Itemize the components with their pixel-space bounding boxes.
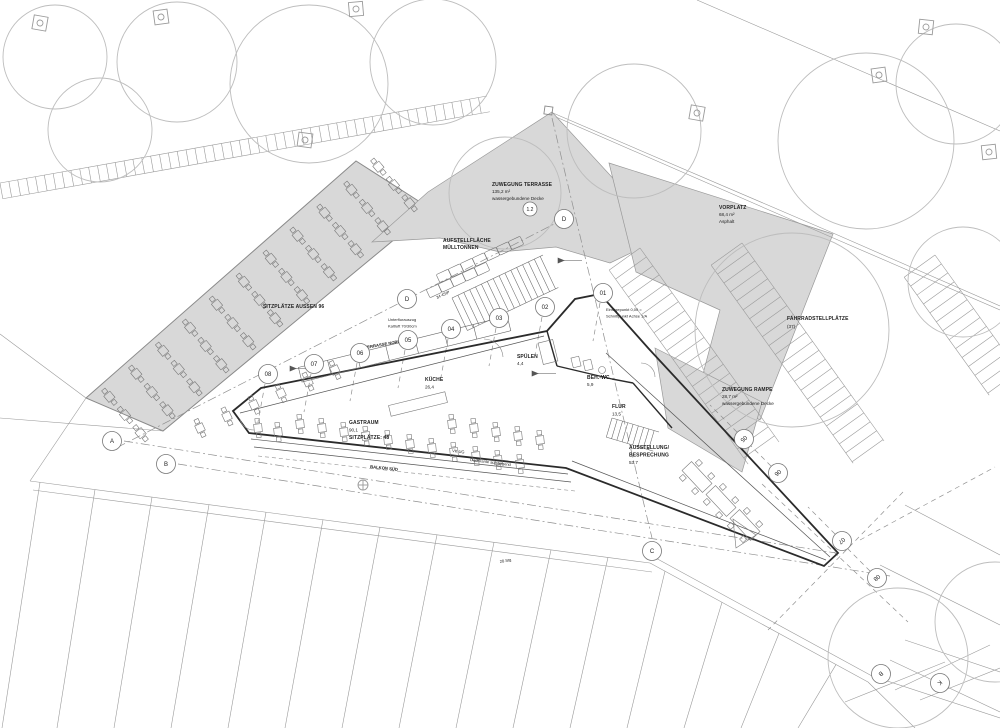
sidewalk-rung: [0, 183, 3, 199]
parking-top-edge: [652, 556, 872, 676]
label-sitzplaetze-aussen: SITZPLÄTZE AUSSEN 96: [263, 303, 324, 310]
boundary-line: [697, 0, 1000, 131]
label-flur: FLUR: [612, 404, 626, 410]
bike-parking-rung: [827, 404, 858, 426]
sidewalk-rung: [177, 151, 180, 167]
parking-stall-line: [171, 505, 209, 728]
parking-stall-line: [627, 571, 665, 728]
grid-marker: 07: [305, 355, 324, 374]
sidewalk-rung: [328, 124, 331, 140]
grid-marker-label: 04: [448, 327, 455, 333]
paved-areas-layer: [86, 112, 833, 472]
chair: [329, 360, 335, 366]
chair: [275, 422, 280, 427]
chair: [695, 459, 702, 466]
sidewalk-rung: [168, 153, 171, 169]
chair: [719, 483, 726, 490]
conference-table: [701, 481, 741, 521]
sidewalk-rung: [133, 159, 136, 175]
gastraum-table: [491, 422, 501, 442]
bike-parking-rung: [648, 302, 679, 324]
flur-stair-rail: [612, 418, 659, 432]
sidewalk-rung: [284, 132, 287, 148]
tree-canopy: [370, 0, 496, 125]
edge-parking-rung: [981, 362, 1000, 384]
boundary-line: [880, 565, 1000, 625]
marker-stub: [489, 328, 496, 366]
conference-table-top: [706, 486, 736, 517]
tree-trunk-square: [871, 67, 887, 83]
parking-stall-line: [456, 542, 494, 728]
sidewalk-rung: [416, 109, 419, 125]
label-fahrradstellplaetze-count: (37): [787, 324, 796, 329]
chair: [449, 414, 454, 419]
tree-canopy: [3, 5, 107, 109]
sidewalk-rung: [390, 113, 393, 129]
grid-marker: 06: [351, 344, 370, 363]
marker-stub: [535, 317, 542, 355]
gastraum-table-top: [514, 432, 523, 441]
sidewalk-rung: [461, 101, 464, 117]
chair: [194, 418, 200, 424]
chair: [200, 432, 206, 438]
gastraum-table-top: [296, 420, 305, 429]
survey-point-marker: [544, 106, 553, 115]
parking-stall-line: [570, 557, 608, 728]
label-zuwegung-rampe: ZUWEGUNG RAMPE: [722, 387, 773, 393]
label-kueche-size: 26,4: [425, 385, 434, 390]
label-zuwegung-terrasse: ZUWEGUNG TERRASSE: [492, 182, 553, 188]
sidewalk-rung: [266, 136, 269, 152]
plan-svg: ZUWEGUNG TERRASSE 135,2 m² wassergebunde…: [0, 0, 1000, 728]
grid-marker-label: 03: [496, 316, 503, 322]
parking-stall-line: [399, 535, 437, 728]
chair: [341, 422, 346, 427]
chair: [471, 418, 476, 423]
grid-marker-label: B: [164, 462, 168, 468]
edge-parking-rung: [968, 344, 999, 366]
label-beh-wc: BEH.-WC: [587, 375, 610, 381]
label-beh-wc-size: 5,9: [587, 382, 594, 387]
grid-marker-label: A: [110, 439, 114, 445]
tree-trunk-marker: [153, 9, 169, 25]
bike-parking-rung: [794, 359, 825, 381]
main-stair-rung: [505, 273, 520, 306]
grid-marker: 04: [442, 320, 461, 339]
grid-marker: B: [157, 455, 176, 474]
parking-stall-line: [342, 527, 380, 728]
chair: [221, 407, 227, 413]
main-stair-rung: [540, 256, 555, 289]
parking-top-edge: [33, 490, 652, 572]
edge-parking-rung: [943, 309, 974, 331]
chair: [493, 422, 498, 427]
grid-marker: D: [398, 290, 417, 309]
bike-parking-rung: [628, 275, 659, 297]
gastraum-table-top: [340, 428, 349, 437]
gastraum-table: [295, 414, 305, 434]
chair: [472, 433, 477, 438]
grid-marker: 02: [536, 298, 555, 317]
grid-marker-label: D: [405, 297, 410, 303]
chair: [320, 433, 325, 438]
chair: [473, 446, 478, 451]
sidewalk-rung: [275, 134, 278, 150]
note-unterflur-2: Kaltluft 70/30cm: [388, 324, 417, 329]
chair: [703, 498, 710, 505]
sidewalk-rung: [452, 102, 455, 118]
bike-parking-rung: [673, 337, 704, 359]
kitchen-island: [389, 392, 448, 417]
tree-canopy: [117, 2, 237, 122]
edge-parking-rung: [956, 326, 987, 348]
chair: [679, 474, 686, 481]
corner-lane-line: [868, 682, 915, 728]
tree-trunk-square: [153, 9, 169, 25]
tree-trunk-circle: [986, 149, 993, 156]
parking-stall-line: [285, 520, 323, 728]
flur-stair-rung: [633, 426, 639, 445]
flur-stair-rung: [638, 427, 644, 446]
bike-parking-rung: [801, 368, 832, 390]
sidewalk-rung: [221, 143, 224, 159]
chair: [342, 437, 347, 442]
chair: [255, 418, 260, 423]
parking-stall-line: [2, 482, 40, 728]
edge-parking-rung: [930, 291, 961, 313]
sidewalk-rung: [97, 166, 100, 182]
tree-trunk-marker: [348, 1, 363, 16]
label-balkon-sued: BALKON SÜD: [370, 464, 398, 472]
edge-parking-rung: [962, 335, 993, 357]
label-zuwegung-terrasse-surface: wassergebundene Decke: [492, 196, 544, 201]
sidewalk-rung: [399, 112, 402, 128]
gastraum-table: [317, 418, 327, 438]
main-stair-rung: [499, 276, 514, 309]
flur-stair-rung: [606, 418, 612, 437]
tree-trunk-circle: [302, 137, 309, 144]
main-stair-rung: [534, 259, 549, 292]
label-vorplatz: VORPLATZ: [719, 205, 746, 211]
chair: [297, 414, 302, 419]
sidewalk-rail: [0, 96, 487, 183]
sidewalk-rung: [124, 161, 127, 177]
label-zuwegung-rampe-size: 28,7 m²: [722, 394, 738, 399]
label-fahrradstellplaetze: FAHRRADSTELLPLÄTZE: [787, 315, 849, 322]
tree-trunk-marker: [981, 144, 996, 159]
sidewalk-rung: [213, 145, 216, 161]
sidewalk-rung: [106, 164, 109, 180]
label-kueche: KÜCHE: [425, 376, 444, 383]
sidewalk-rung: [248, 139, 251, 155]
label-ausstellung: AUSSTELLUNG/: [629, 445, 670, 451]
tree-trunk-circle: [694, 110, 701, 117]
tree-trunk-square: [981, 144, 996, 159]
site-plan-drawing: ZUWEGUNG TERRASSE 135,2 m² wassergebunde…: [0, 0, 1000, 728]
gastraum-table: [513, 426, 523, 446]
flag-head: [290, 366, 296, 371]
note-einfuegepunkt-2: Schnittpunkt Achse 1/A: [606, 314, 647, 319]
bike-parking-rung: [660, 320, 691, 342]
tree-canopy: [48, 78, 152, 182]
parking-stall-line: [228, 512, 266, 728]
grid-marker-label: 01: [600, 291, 607, 297]
sidewalk-rung: [292, 131, 295, 147]
gastraum-table-top: [254, 424, 263, 433]
main-stair-rung: [528, 262, 543, 295]
survey-flag-icon: [532, 371, 556, 376]
property-dash-line: [860, 467, 995, 540]
sidewalk-rung: [80, 169, 83, 185]
label-vorplatz-size: 68,4 m²: [719, 212, 735, 217]
main-stair-rung: [511, 270, 526, 303]
chair: [319, 418, 324, 423]
chair: [756, 521, 763, 528]
wc-fixture: [571, 356, 581, 368]
grid-marker: D: [555, 210, 574, 229]
label-gastraum-size: 90,1: [349, 428, 358, 433]
chair: [452, 457, 457, 462]
sidewalk-rung: [425, 107, 428, 123]
note-ramp-steps: 28 Stg: [499, 557, 511, 564]
sidewalk-rung: [159, 155, 162, 171]
boundary-line: [0, 334, 86, 398]
grid-marker: B: [868, 661, 895, 688]
tree-trunk-circle: [37, 20, 44, 27]
bike-parking-rung: [814, 386, 845, 408]
grid-marker: 03: [490, 309, 509, 328]
gastraum-table: [427, 438, 437, 458]
marker-stub: [808, 507, 835, 534]
sidewalk-rung: [62, 172, 65, 188]
bike-parking-rung: [667, 328, 698, 350]
label-zuwegung-rampe-surface: wassergebundene Decke: [722, 401, 774, 406]
main-stair-rung: [523, 265, 538, 298]
chair: [515, 426, 520, 431]
property-dash-line: [768, 492, 903, 630]
chair: [518, 469, 523, 474]
sidewalk-rung: [346, 121, 349, 137]
property-dash-line: [762, 484, 908, 622]
chair: [743, 507, 750, 514]
sidewalk-rung: [151, 156, 154, 172]
chair: [276, 437, 281, 442]
sidewalk-rung: [35, 177, 38, 193]
chair: [450, 429, 455, 434]
sidewalk-rail: [3, 112, 490, 199]
chair: [517, 454, 522, 459]
grid-marker-label: D: [562, 217, 567, 223]
chair: [335, 374, 341, 380]
label-spuelen: SPÜLEN: [517, 353, 538, 360]
sidewalk-rung: [443, 104, 446, 120]
terrace-table: [219, 406, 234, 427]
edge-parking-rung: [936, 300, 967, 322]
gastraum-table: [447, 414, 457, 434]
grid-marker: K: [927, 670, 954, 697]
label-flur-size: 13,5: [612, 412, 621, 417]
conference-table: [725, 505, 765, 545]
sidewalk-rung: [53, 174, 56, 190]
tree-trunk-circle: [876, 72, 883, 79]
chair: [407, 434, 412, 439]
bike-parking-rung: [654, 311, 685, 333]
chair: [538, 445, 543, 450]
stairs-layer: [452, 255, 659, 451]
tree-trunk-circle: [923, 24, 930, 31]
dachkante-dashed-line: [258, 456, 575, 491]
flur-stair-rung: [617, 421, 623, 440]
tree-trunk-circle: [353, 6, 360, 13]
grid-marker: A: [103, 432, 122, 451]
chair: [363, 426, 368, 431]
grid-marker-label: 1.2: [527, 207, 534, 213]
gastraum-table-top: [448, 420, 457, 429]
sidewalk-rung: [434, 105, 437, 121]
conference-table-top: [682, 462, 712, 493]
parking-top-edge: [650, 563, 868, 682]
label-gastraum: GASTRAUM: [349, 420, 379, 426]
chair: [708, 473, 715, 480]
label-spuelen-size: 4,4: [517, 361, 524, 366]
edge-parking-rung: [975, 353, 1000, 375]
label-terrasse-nord: TERRASSE NORD: [364, 339, 401, 350]
boundary-line: [30, 398, 86, 481]
grid-marker-label: 07: [311, 362, 318, 368]
parking-stall-line: [741, 633, 779, 728]
conference-table: [677, 457, 717, 497]
marker-stub: [593, 303, 600, 341]
parking-stall-line: [114, 497, 152, 728]
sidewalk-rung: [27, 178, 30, 194]
wc-fixture: [583, 359, 593, 371]
main-stair-rung: [517, 267, 532, 300]
survey-flag-icon: [558, 258, 582, 263]
gastraum-table-top: [406, 440, 415, 449]
label-aufstellflaeche: AUFSTELLFLÄCHE: [443, 237, 491, 244]
tree-trunk-square: [32, 15, 48, 31]
chair: [692, 488, 699, 495]
tree-trunk-circle: [158, 14, 165, 21]
gastraum-table-top: [492, 428, 501, 437]
chair: [451, 442, 456, 447]
chair: [494, 437, 499, 442]
label-besprechung: BESPRECHUNG: [629, 453, 669, 459]
main-stair-rung: [464, 292, 479, 325]
marker-stub: [441, 339, 448, 377]
sidewalk-rung: [230, 142, 233, 158]
boundary-line: [831, 237, 1000, 310]
sidewalk-rung: [186, 150, 189, 166]
main-stair-rung: [458, 295, 473, 328]
bike-parking-rung: [839, 422, 870, 444]
gastraum-table: [273, 422, 283, 442]
sidewalk-rung: [9, 181, 12, 197]
chair: [298, 429, 303, 434]
bike-parking-rung: [820, 395, 851, 417]
sidewalk-rung: [195, 148, 198, 164]
label-vorplatz-surface: Asphalt: [719, 219, 735, 224]
tree-canopy: [230, 5, 388, 163]
gastraum-table: [339, 422, 349, 442]
parking-stall-line: [513, 550, 551, 728]
sidewalk-rung: [408, 110, 411, 126]
sidewalk-rung: [363, 118, 366, 134]
grid-marker-label: 08: [265, 372, 272, 378]
outdoor-table: [131, 423, 149, 443]
sidewalk-rung: [18, 180, 21, 196]
bike-parking-rung: [788, 350, 819, 372]
sidewalk-rung: [115, 162, 118, 178]
gastraum-table-top: [470, 424, 479, 433]
sidewalk-rung: [71, 170, 74, 186]
bike-parking-rung: [852, 440, 883, 462]
chair: [516, 441, 521, 446]
edge-parking-rail: [935, 255, 1000, 373]
edge-parking-rung: [923, 282, 954, 304]
parking-stall-line: [57, 490, 95, 728]
bike-parking-rung: [807, 377, 838, 399]
note-unterflur-1: Unterflurauszug: [388, 317, 416, 322]
note-stair-steps: 34 4StP: [435, 289, 450, 300]
kitchen-counter-divider: [386, 346, 390, 361]
corner-lane-line: [905, 640, 1000, 672]
survey-square: [544, 106, 553, 115]
gastraum-table-top: [428, 444, 437, 453]
grid-marker-label: 05: [405, 338, 412, 344]
gastraum-table-top: [318, 424, 327, 433]
sidewalk-rung: [337, 123, 340, 139]
main-stair-rung: [493, 279, 508, 312]
grid-marker: 05: [399, 331, 418, 350]
edge-parking-rung: [988, 371, 1000, 393]
sidewalk-rung: [319, 126, 322, 142]
tree-trunk-marker: [32, 15, 48, 31]
bike-parking-rung: [641, 293, 672, 315]
chair: [537, 430, 542, 435]
flag-head: [558, 258, 564, 263]
sidewalk-rung: [204, 147, 207, 163]
chair: [429, 438, 434, 443]
parking-top-edge: [30, 481, 650, 563]
grid-marker: 08: [259, 365, 278, 384]
sidewalk-rung: [239, 140, 242, 156]
label-gastraum-seats: SITZPLÄTZE: 48: [349, 434, 389, 441]
flur-stair-rung: [627, 424, 633, 443]
chair: [495, 450, 500, 455]
wc-basin: [599, 367, 606, 374]
terrace-table: [192, 418, 207, 439]
note-einfuegepunkt-1: Einfügepunkt 0,00 =: [606, 307, 642, 312]
grid-marker: C: [643, 542, 662, 561]
chair: [227, 420, 233, 426]
tree-trunk-marker: [871, 67, 887, 83]
grid-marker-label: C: [650, 549, 655, 555]
note-vk-ug: VK UG: [452, 448, 465, 454]
gastraum-table-top: [536, 436, 545, 445]
flag-head: [532, 371, 538, 376]
gastraum-table: [469, 418, 479, 438]
label-muelltonnen: MÜLLTONNEN: [443, 244, 479, 251]
edge-parking-rail: [904, 277, 989, 395]
main-stair-rung: [476, 287, 491, 320]
flur-stair-rung: [612, 420, 618, 439]
gastraum-table: [535, 430, 545, 450]
chair: [302, 372, 308, 378]
grid-marker-label: 02: [542, 305, 549, 311]
label-ausstellung-size: 53,7: [629, 460, 638, 465]
outdoor-table-top: [373, 161, 384, 172]
